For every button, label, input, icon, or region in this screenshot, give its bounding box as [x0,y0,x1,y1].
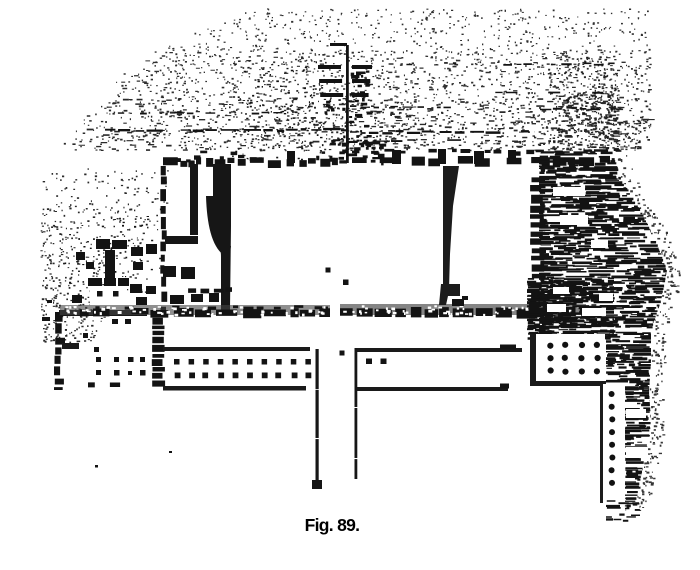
svg-text:Fig. 89.: Fig. 89. [305,515,360,535]
